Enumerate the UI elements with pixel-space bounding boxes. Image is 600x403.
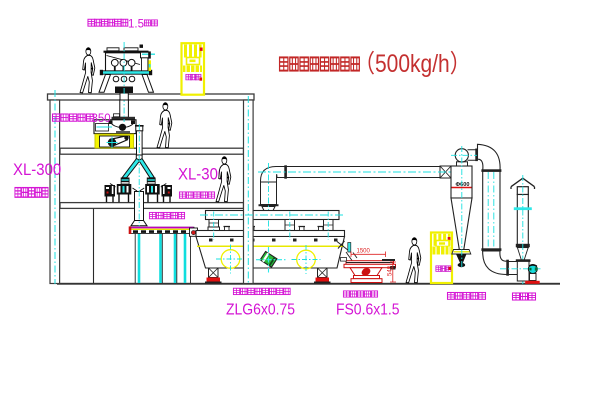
svg-text:（500kg/h）: （500kg/h） — [354, 49, 471, 77]
svg-text:350: 350 — [92, 113, 111, 125]
svg-text:548: 548 — [388, 265, 394, 276]
svg-text:1.5: 1.5 — [128, 19, 144, 31]
svg-text:FS0.6x1.5: FS0.6x1.5 — [336, 302, 400, 319]
svg-text:1500: 1500 — [357, 249, 371, 255]
svg-text:ZLG6x0.75: ZLG6x0.75 — [226, 302, 295, 319]
svg-text:XL-300: XL-300 — [13, 161, 61, 179]
